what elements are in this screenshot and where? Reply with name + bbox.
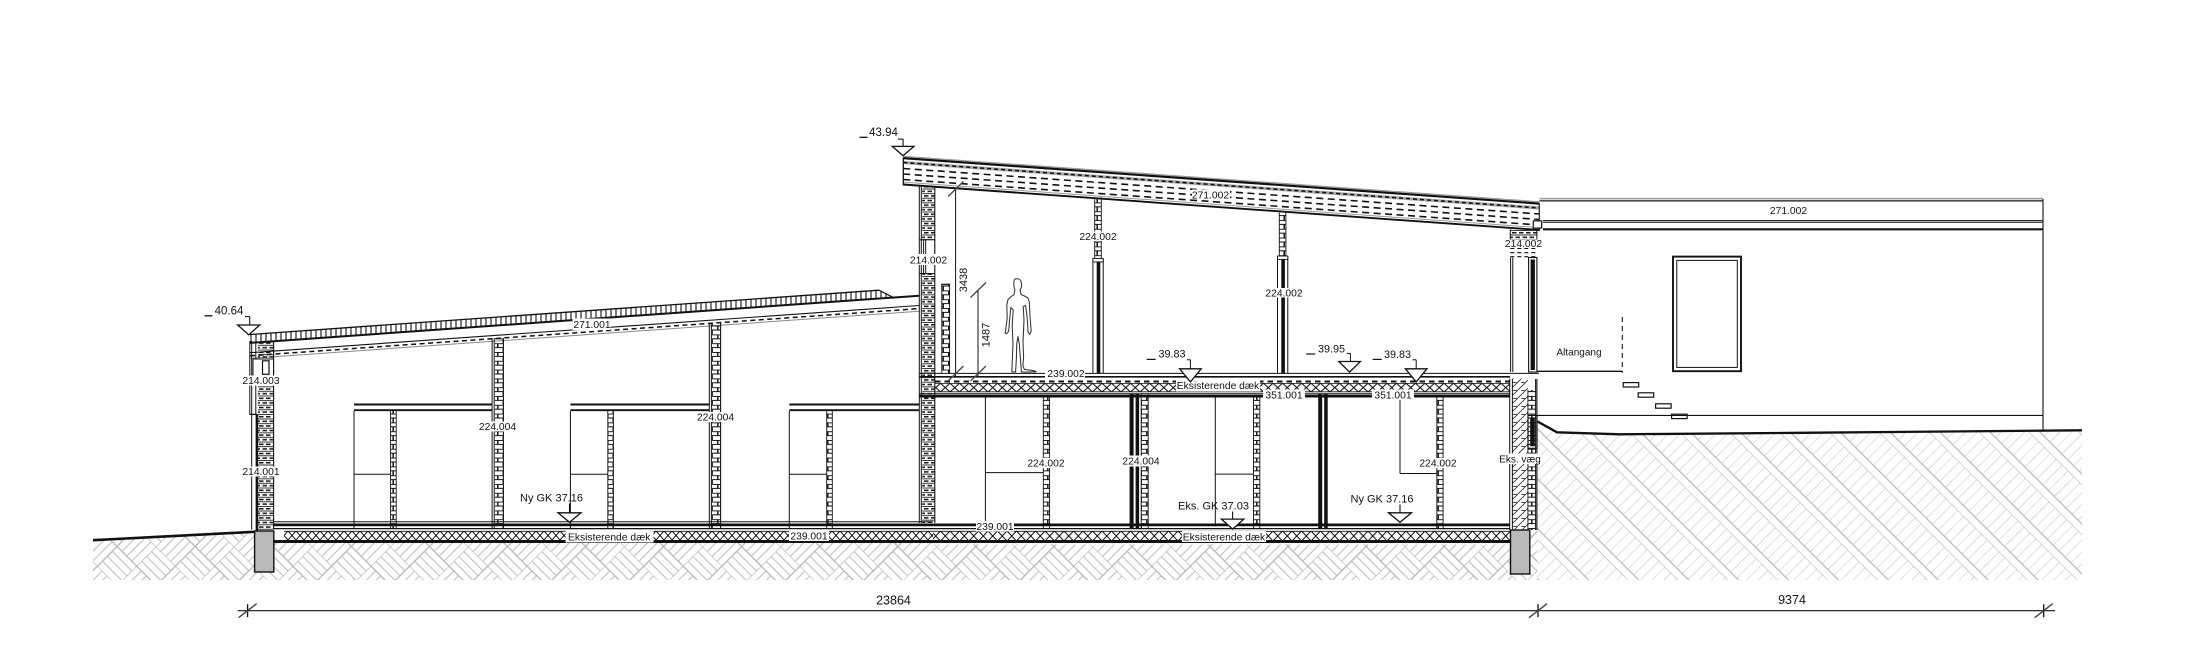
svg-text:Eksisterende dæk: Eksisterende dæk bbox=[1177, 381, 1260, 392]
svg-text:224.004: 224.004 bbox=[479, 422, 516, 433]
svg-text:3438: 3438 bbox=[958, 268, 970, 292]
svg-text:Ny GK 37.16: Ny GK 37.16 bbox=[1351, 494, 1414, 506]
svg-text:214.001: 214.001 bbox=[242, 467, 279, 478]
svg-text:Eks. væg: Eks. væg bbox=[1499, 455, 1541, 466]
svg-text:224.004: 224.004 bbox=[1122, 457, 1159, 468]
svg-text:214.003: 214.003 bbox=[242, 376, 279, 387]
svg-text:239.002: 239.002 bbox=[1047, 369, 1084, 380]
svg-text:Altangang: Altangang bbox=[1556, 348, 1601, 359]
svg-text:351.001: 351.001 bbox=[1265, 391, 1302, 402]
svg-text:39.95: 39.95 bbox=[1318, 343, 1345, 355]
svg-text:9374: 9374 bbox=[1778, 593, 1806, 607]
svg-text:39.83: 39.83 bbox=[1158, 349, 1185, 361]
svg-text:224.002: 224.002 bbox=[1027, 459, 1064, 470]
svg-text:43.94: 43.94 bbox=[869, 127, 898, 139]
svg-text:224.002: 224.002 bbox=[1079, 232, 1116, 243]
svg-text:1487: 1487 bbox=[981, 323, 993, 347]
svg-text:40.64: 40.64 bbox=[215, 306, 244, 318]
svg-text:271.001: 271.001 bbox=[573, 320, 610, 331]
svg-text:Eksisterende dæk: Eksisterende dæk bbox=[568, 532, 651, 543]
svg-text:39.83: 39.83 bbox=[1384, 349, 1411, 361]
svg-text:214.002: 214.002 bbox=[1505, 239, 1542, 250]
svg-text:Eks. GK 37.03: Eks. GK 37.03 bbox=[1178, 501, 1249, 513]
svg-text:23864: 23864 bbox=[876, 594, 911, 608]
svg-text:Ny GK 37.16: Ny GK 37.16 bbox=[520, 493, 583, 505]
svg-text:214.002: 214.002 bbox=[910, 256, 947, 267]
svg-text:239.001: 239.001 bbox=[976, 522, 1013, 533]
svg-text:271.002: 271.002 bbox=[1192, 191, 1229, 202]
svg-text:351.001: 351.001 bbox=[1374, 391, 1411, 402]
svg-text:239.001: 239.001 bbox=[790, 532, 827, 543]
svg-text:224.002: 224.002 bbox=[1419, 459, 1456, 470]
svg-text:Eksisterende dæk: Eksisterende dæk bbox=[1183, 532, 1266, 543]
svg-text:224.002: 224.002 bbox=[1265, 289, 1302, 300]
svg-text:271.002: 271.002 bbox=[1770, 206, 1807, 217]
svg-text:224.004: 224.004 bbox=[697, 413, 734, 424]
